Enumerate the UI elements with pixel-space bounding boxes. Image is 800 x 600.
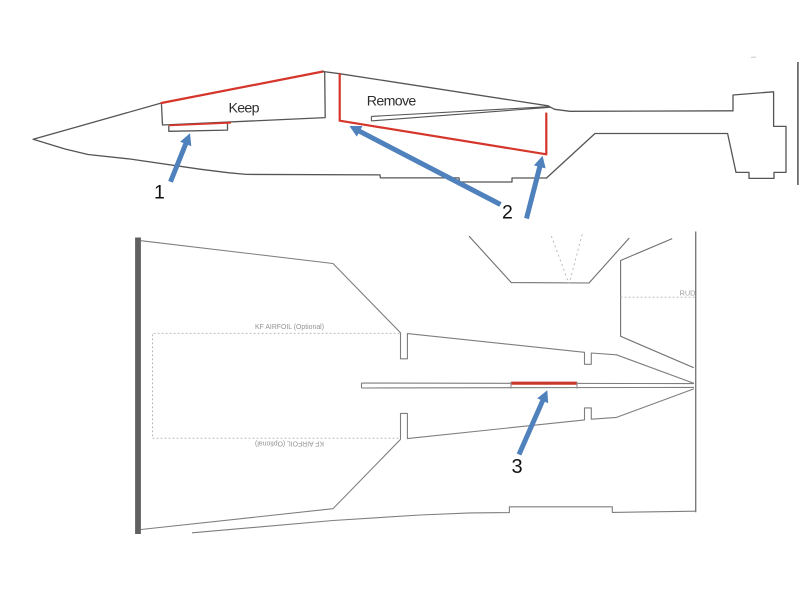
svg-text:2: 2: [502, 202, 513, 224]
svg-text:1: 1: [154, 181, 165, 203]
svg-text:RUD: RUD: [680, 288, 696, 297]
svg-text:KF AIRFOIL (Optional): KF AIRFOIL (Optional): [255, 439, 324, 448]
svg-text:3: 3: [512, 456, 523, 478]
svg-text:KF AIRFOIL (Optional): KF AIRFOIL (Optional): [255, 322, 324, 331]
svg-text:Remove: Remove: [367, 94, 417, 110]
svg-text:Keep: Keep: [229, 101, 260, 117]
